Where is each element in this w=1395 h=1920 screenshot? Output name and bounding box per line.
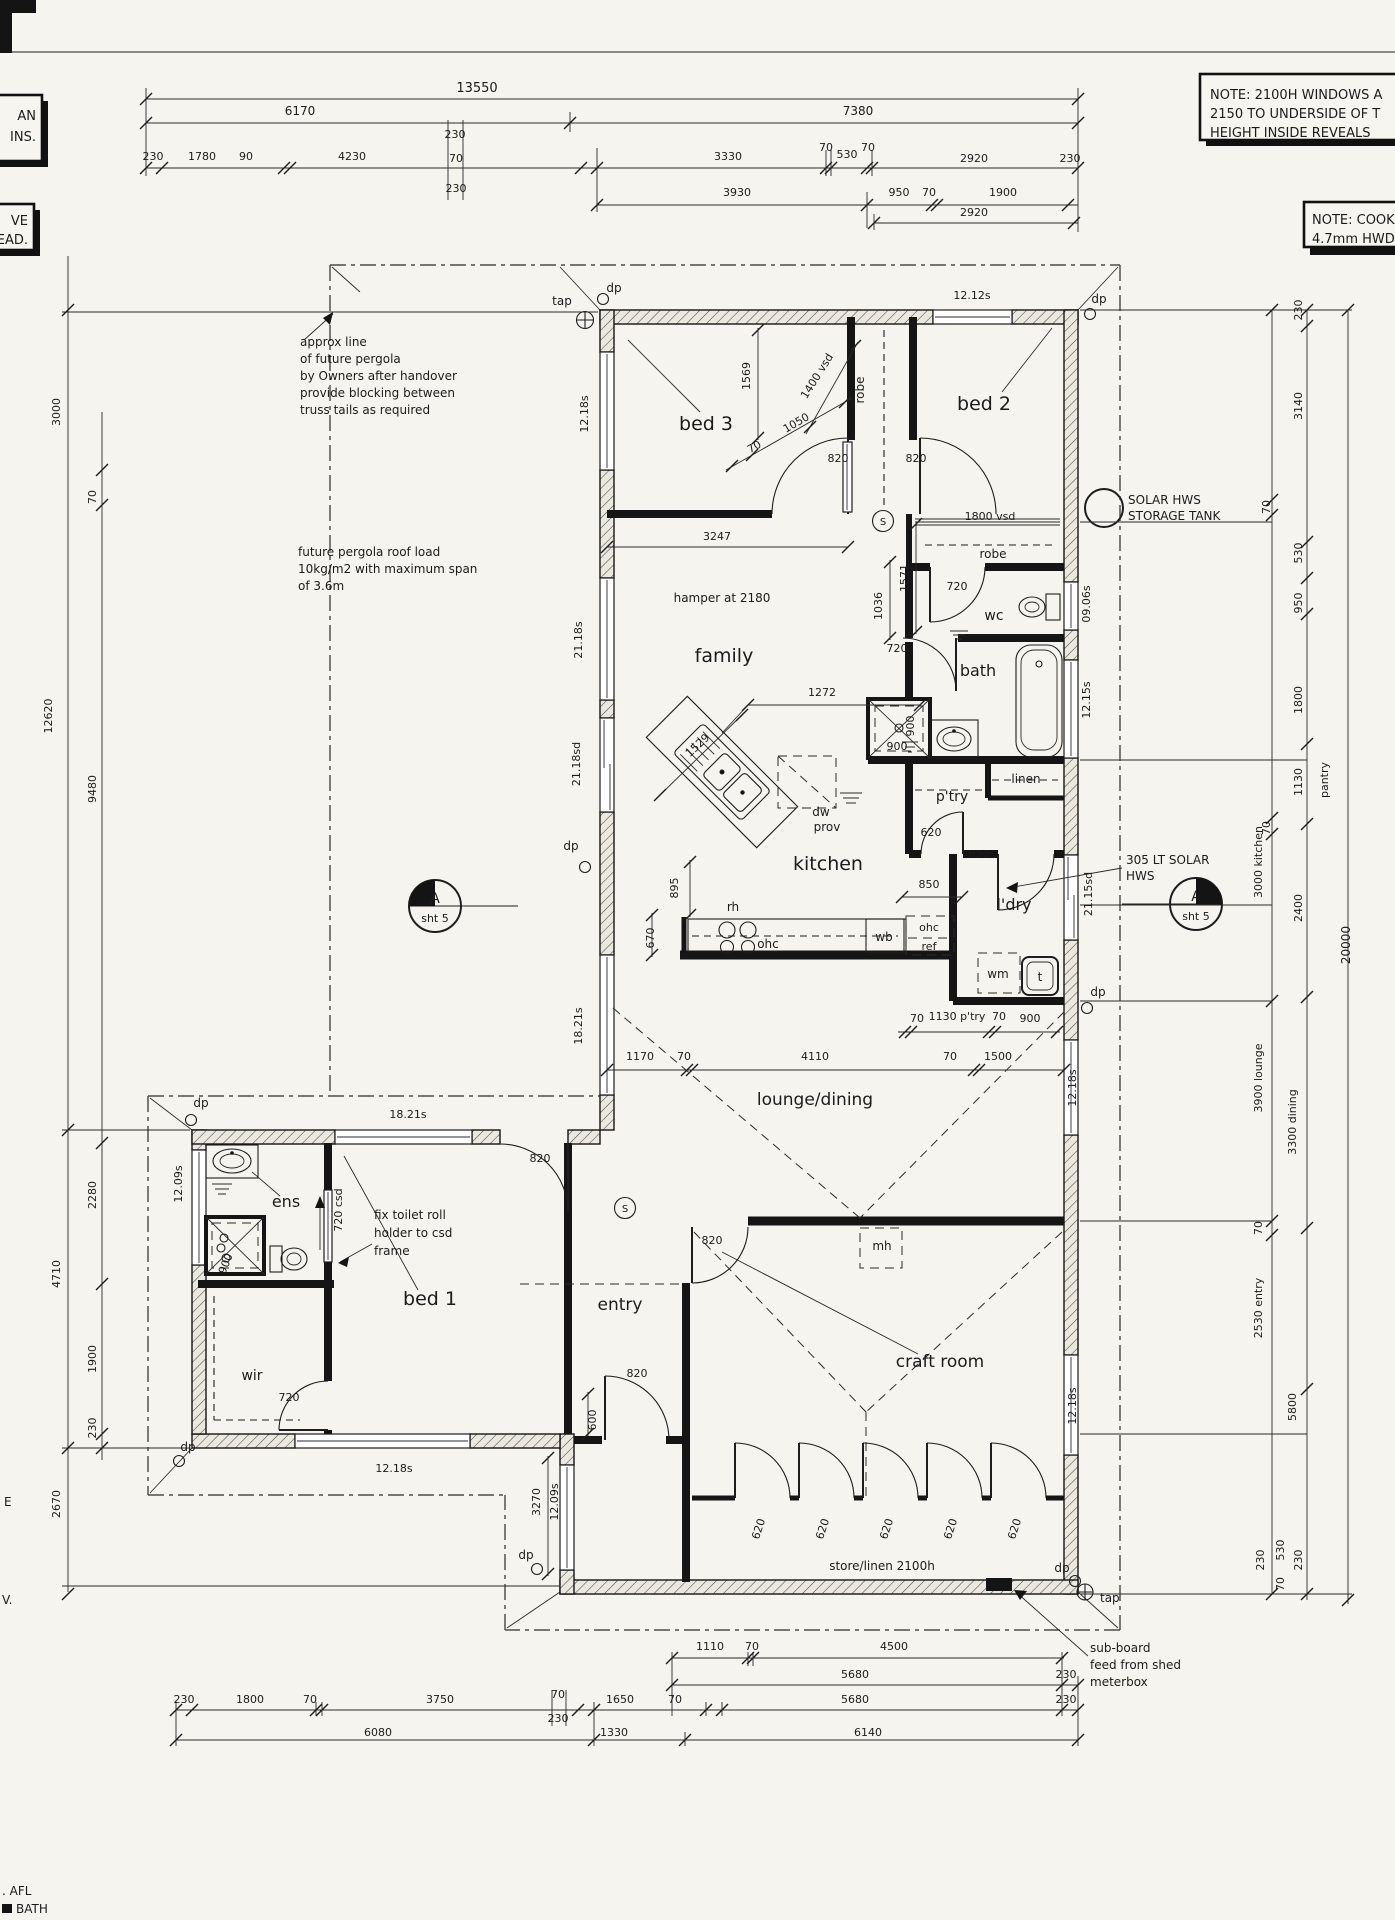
plan-label: 820 [530,1152,551,1165]
plan-label: holder to csd [374,1226,452,1240]
plan-label: 230 [445,128,466,141]
note-windows-1: NOTE: 2100H WINDOWS A [1210,88,1383,103]
plan-label: 70 [745,1640,759,1653]
meterbox [986,1578,1012,1591]
plan-label: dp [1091,292,1106,306]
plan-label: 2670 [50,1490,63,1518]
plan-label: 1130 [1292,768,1305,796]
plan-label: 4500 [880,1640,908,1653]
plan-label: mh [872,1239,891,1253]
plan-label: 1170 [626,1050,654,1063]
plan-label: 530 [1274,1540,1287,1561]
plan-label: of future pergola [300,352,401,366]
plan-label: 3270 [530,1488,543,1516]
kitchen-bench [688,916,954,955]
plan-label: dp [1090,985,1105,999]
plan-label: 230 [548,1712,569,1725]
plan-label: lounge/dining [757,1090,873,1110]
plan-label: 230 [1056,1668,1077,1681]
plan-label: 820 [828,452,849,465]
plan-label: 21.18s [572,621,585,658]
bath-vanity [930,720,978,758]
plan-label: kitchen [793,853,863,875]
plan-label: meterbox [1090,1675,1148,1689]
plan-label: tap [1100,1591,1120,1605]
plan-label: 620 [921,826,942,839]
plan-label: 620 [813,1517,832,1541]
plan-label: 600 [586,1410,599,1431]
plan-label: 1272 [808,686,836,699]
plan-label: dp [1054,1561,1069,1575]
plan-label: dw [812,805,830,819]
plan-label: bed 2 [957,393,1011,415]
plan-label: l'dry [996,895,1031,914]
plan-label: 1800 vsd [965,510,1016,523]
plan-label: S [622,1204,628,1215]
plan-label: 70 [1274,1577,1287,1591]
plan-label: 3000 kitchen [1252,826,1265,898]
plan-label: 720 [279,1391,300,1404]
plan-label: 900 [1020,1012,1041,1025]
plan-label: dp [606,281,621,295]
plan-label: 70 [745,438,764,456]
plan-label: 12.09s [172,1165,185,1202]
plan-label: 6170 [285,104,316,118]
plan-label: 5680 [841,1668,869,1681]
plan-label: of 3.6m [298,579,344,593]
plan-label: 820 [627,1367,648,1380]
plan-label: 12.18s [1066,1387,1079,1424]
plan-label: pantry [1318,761,1331,798]
note-cook-2: 4.7mm HWD [1312,232,1395,247]
plan-label: frame [374,1244,410,1258]
plan-label: dp [563,839,578,853]
plan-label: 12620 [42,699,55,734]
plan-label: 4710 [50,1260,63,1288]
plan-label: robe [853,376,867,403]
plan-label: 70 [677,1050,691,1063]
plan-label: 70 [922,186,936,199]
plan-label: prov [814,820,841,834]
plan-label: 820 [906,452,927,465]
tap-symbol-bottom [1077,1584,1093,1600]
plan-label: 70 [551,1688,565,1701]
plan-label: 530 [1292,543,1305,564]
plan-label: 21.18sd [570,742,583,786]
plan-label: robe [979,547,1006,561]
plan-label: ens [272,1192,300,1211]
plan-label: 1130 p'try [929,1010,986,1023]
plan-label: 70 [910,1012,924,1025]
plan-label: 70 [1252,1221,1265,1235]
note-left-b1: VE [11,214,28,229]
plan-label: 895 [668,878,681,899]
plan-label: 670 [644,928,657,949]
plan-label: 6140 [854,1726,882,1739]
tap-symbol-top [577,312,594,329]
note-windows-2: 2150 TO UNDERSIDE OF T [1210,107,1380,122]
plan-label: 230 [1254,1550,1267,1571]
plan-label: provide blocking between [300,386,455,400]
plan-label: future pergola roof load [298,545,440,559]
plan-label: 1529 [683,731,712,760]
wc-toilet [950,594,1060,639]
note-windows-3: HEIGHT INSIDE REVEALS [1210,126,1371,141]
plan-label: 230 [1292,300,1305,321]
plan-label: dp [518,1548,533,1562]
plan-label: sht 5 [421,912,449,925]
plan-label: 70 [449,152,463,165]
bathtub [1016,645,1062,757]
edge-text-afl: . AFL [2,1884,32,1898]
plan-label: SOLAR HWS [1128,493,1201,507]
plan-label: 1780 [188,150,216,163]
plan-label: 12.18s [1066,1069,1079,1106]
solar-tank [1085,489,1123,527]
plan-label: HWS [1126,869,1155,883]
plan-label: family [695,645,754,667]
plan-label: 2280 [86,1181,99,1209]
plan-label: 1900 [989,186,1017,199]
plan-label: entry [598,1295,643,1315]
plan-label: ohc [919,921,939,934]
robe-shelving [214,330,1058,1420]
plan-label: 90 [239,150,253,163]
plan-label: 3750 [426,1693,454,1706]
plan-label: 70 [819,141,833,154]
plan-label: 900 [887,740,908,753]
plan-labels: 1355061707380230178090423023070230333070… [42,81,1353,1739]
plan-label: bath [960,661,996,680]
plan-label: tap [552,294,572,308]
plan-label: 230 [446,182,467,195]
plan-label: 12.12s [953,289,990,302]
note-box-left-a [0,95,42,161]
plan-label: t [1038,970,1043,984]
plan-label: 4110 [801,1050,829,1063]
plan-label: 2920 [960,206,988,219]
roof-lines [252,328,1064,1496]
drawing-sheet: AN INS. VE HEAD. NOTE: 2100H WINDOWS A 2… [0,0,1395,1920]
plan-label: 70 [861,141,875,154]
plan-label: 230 [143,150,164,163]
edge-text-e: E [4,1495,12,1509]
plan-label: 2400 [1292,894,1305,922]
plan-label: 1569 [740,362,753,390]
note-cook-1: NOTE: COOK [1312,213,1395,228]
plan-label: 230 [86,1418,99,1439]
plan-label: linen [1011,772,1040,786]
plan-label: ohc [757,937,779,951]
plan-label: 850 [919,878,940,891]
plan-label: 13550 [456,81,497,96]
plan-label: 1900 [86,1345,99,1373]
note-left-a2: INS. [10,130,36,145]
plan-label: 70 [1260,500,1273,514]
plan-label: 3330 [714,150,742,163]
plan-label: 7380 [843,104,874,118]
plan-label: wir [241,1368,262,1384]
plan-label: 3247 [703,530,731,543]
plan-label: truss tails as required [300,403,430,417]
plan-label: 3000 [50,398,63,426]
plan-label: wb [875,930,892,944]
plan-label: 2920 [960,152,988,165]
plan-label: 1650 [606,1693,634,1706]
edge-text-v: V. [2,1593,12,1607]
plan-label: 620 [941,1517,960,1541]
note-left-b2: HEAD. [0,233,28,248]
plan-label: 1800 [1292,686,1305,714]
plan-label: 305 LT SOLAR [1126,853,1209,867]
plan-label: 1571 [898,564,911,592]
doors [279,438,1060,1498]
plan-label: 1500 [984,1050,1012,1063]
plan-label: 3900 lounge [1252,1043,1265,1112]
plan-label: STORAGE TANK [1128,509,1222,523]
plan-label: 820 [702,1234,723,1247]
plan-label: 5680 [841,1693,869,1706]
plan-label: 3140 [1292,392,1305,420]
plan-label: 230 [1060,152,1081,165]
plan-label: 530 [837,148,858,161]
plan-label: fix toilet roll [374,1208,446,1222]
plan-label: 720 [947,580,968,593]
plan-label: 720 [887,642,908,655]
plan-label: 3300 dining [1286,1089,1299,1155]
plan-label: 620 [749,1517,768,1541]
plan-label: 2530 entry [1252,1277,1265,1338]
plan-label: 230 [1056,1693,1077,1706]
plan-label: 09.06s [1080,585,1093,622]
plan-label: 1800 [236,1693,264,1706]
plan-label: ref [922,940,938,953]
plan-label: 620 [1005,1517,1024,1541]
plan-label: 950 [889,186,910,199]
plan-label: sht 5 [1182,910,1210,923]
plan-label: 12.18s [578,395,591,432]
plan-label: 21.15sd [1082,872,1095,916]
plan-label: 900 [904,716,917,737]
plan-label: dp [180,1440,195,1454]
plan-label: bed 1 [403,1288,457,1310]
plan-label: wc [984,608,1003,624]
plan-label: 4230 [338,150,366,163]
plan-label: wm [987,967,1009,981]
plan-label: 20000 [1339,926,1353,964]
plan-label: 12.15s [1080,681,1093,718]
plan-label: 950 [1292,593,1305,614]
plan-label: 1400 vsd [798,351,836,401]
edge-text-bath: BATH [16,1902,48,1916]
plan-label: 230 [1292,1550,1305,1571]
note-left-a1: AN [17,109,36,124]
plan-label: 12.18s [375,1462,412,1475]
plan-label: 18.21s [389,1108,426,1121]
legend-swatch [2,1904,12,1913]
plan-label: A [1191,889,1201,905]
plan-label: by Owners after handover [300,369,457,383]
plan-label: 9480 [86,775,99,803]
plan-label: 5800 [1286,1393,1299,1421]
plan-label: 70 [86,490,99,504]
plan-label: hamper at 2180 [674,591,771,605]
plan-label: 70 [668,1693,682,1706]
eaves-and-pergola-outline [148,265,1120,1630]
plan-label: dp [193,1096,208,1110]
plan-label: approx line [300,335,367,349]
plan-label: 10kg/m2 with maximum span [298,562,477,576]
plan-label: feed from shed [1090,1658,1181,1672]
plan-label: 6080 [364,1726,392,1739]
plan-label: 620 [877,1517,896,1541]
plan-label: 70 [992,1010,1006,1023]
plan-label: 18.21s [572,1007,585,1044]
plan-label: p'try [936,789,968,805]
downpipe-circles [174,294,1096,1587]
plan-label: 720 csd [332,1188,345,1231]
plan-label: 3930 [723,186,751,199]
plan-label: craft room [896,1352,985,1372]
floor-plan-drawing: AN INS. VE HEAD. NOTE: 2100H WINDOWS A 2… [0,0,1395,1920]
plan-label: A [430,891,440,907]
plan-label: 1036 [872,592,885,620]
plan-label: 12.09s [548,1483,561,1520]
plan-label: S [880,517,886,528]
plan-label: store/linen 2100h [829,1559,935,1573]
plan-label: 1110 [696,1640,724,1653]
plan-label: 820 [969,848,990,861]
plan-label: 230 [174,1693,195,1706]
plan-label: 1330 [600,1726,628,1739]
plan-label: 70 [943,1050,957,1063]
plan-label: sub-board [1090,1641,1150,1655]
plan-label: 70 [303,1693,317,1706]
plan-label: bed 3 [679,413,733,435]
plan-label: rh [727,900,739,914]
kitchen-sink [646,696,797,847]
